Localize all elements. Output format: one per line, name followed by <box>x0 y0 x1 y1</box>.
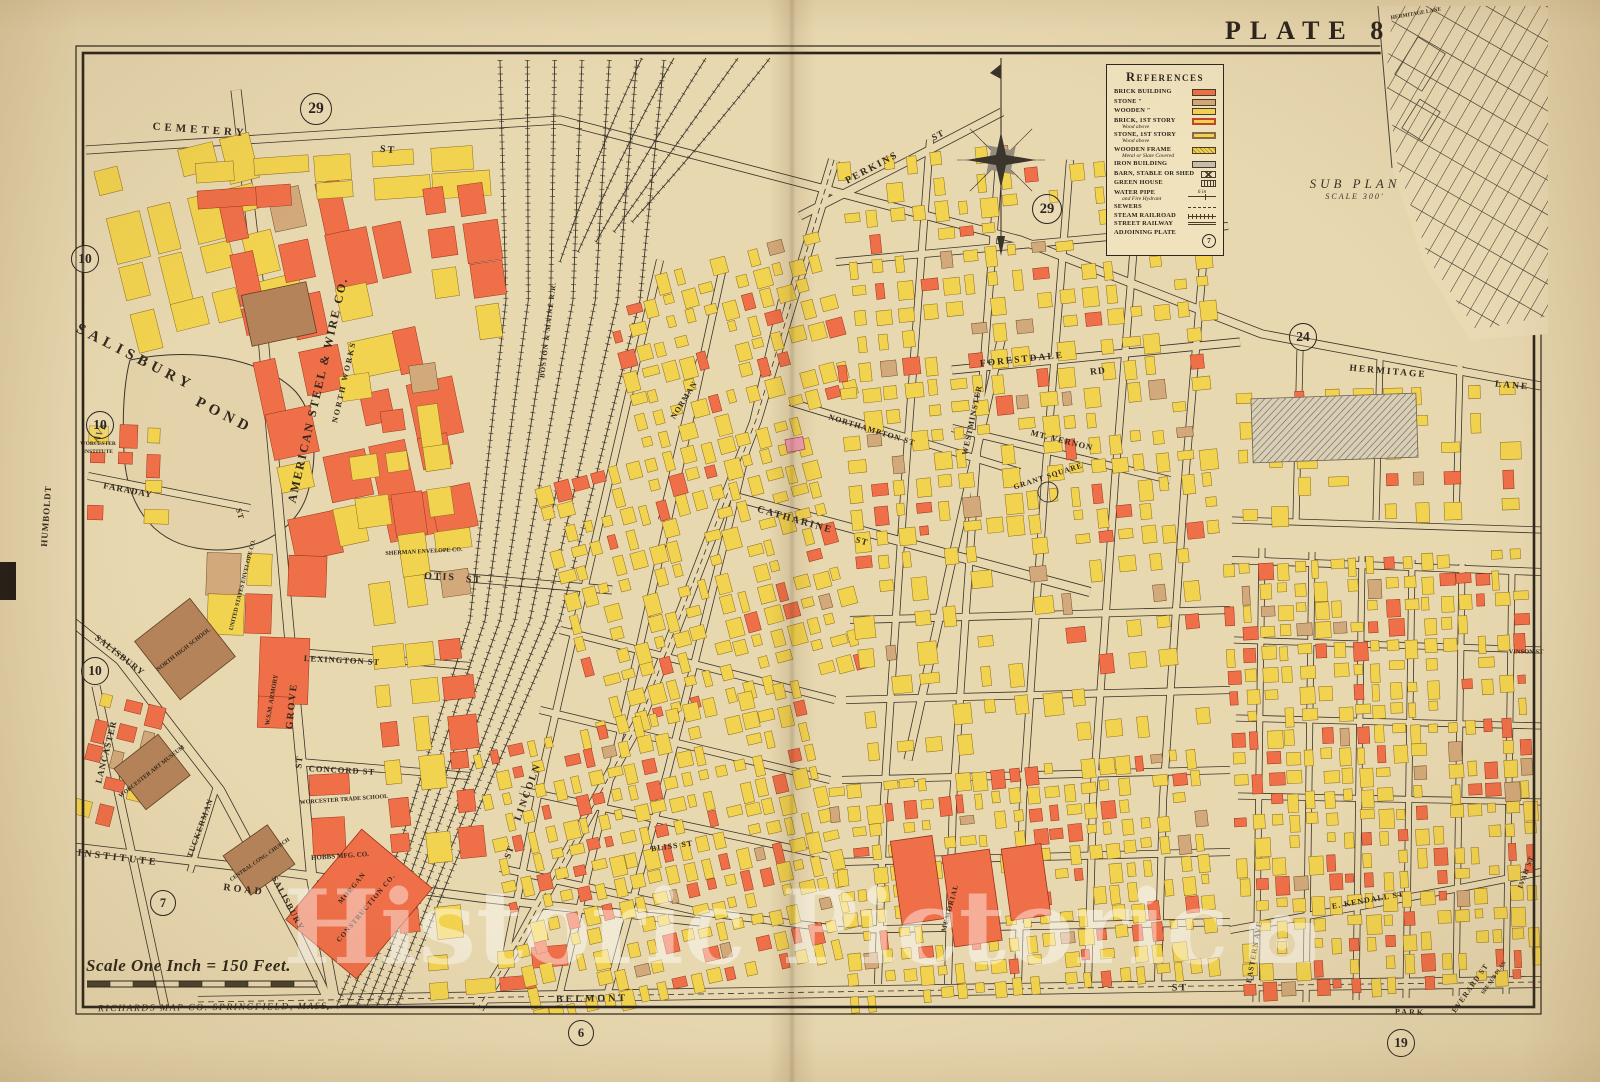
legend-item-label: Water Pipe <box>1114 189 1161 196</box>
subplan-title: SUB PLAN <box>1300 176 1410 192</box>
legend-swatch-plate: 7 <box>1202 230 1216 248</box>
legend-swatch-brick1 <box>1192 118 1216 125</box>
plate-title-label: Plate <box>1225 16 1355 45</box>
legend-row: Wooden ″ <box>1114 107 1216 115</box>
legend-row: Adjoining Plate7 <box>1114 229 1216 248</box>
scale-text: Scale One Inch = 150 Feet. <box>86 956 331 976</box>
margin-ink-tab <box>0 562 16 600</box>
publisher-credit: RICHARDS MAP CO. SPRINGFIELD, MASS. <box>98 1002 331 1014</box>
references-legend: References Brick BuildingStone ″Wooden ″… <box>1106 64 1224 256</box>
legend-swatch-railroad <box>1188 214 1216 219</box>
map-canvas <box>0 0 1600 1082</box>
legend-item-label: Sewers <box>1114 203 1142 210</box>
legend-swatch-sewer <box>1188 207 1216 208</box>
adjoining-plate-glyph: 7 <box>1202 234 1216 248</box>
subplan-label: SUB PLAN SCALE 300' <box>1300 176 1410 201</box>
legend-row: Wooden FrameMetal or Slate Covered <box>1114 146 1216 159</box>
legend-item-label: Brick, 1st Story <box>1114 117 1176 124</box>
legend-row: Brick, 1st StoryWood above <box>1114 117 1216 130</box>
legend-swatch-water: 6 in <box>1188 190 1216 197</box>
legend-row: Stone ″ <box>1114 98 1216 106</box>
legend-swatch-frame <box>1192 147 1216 154</box>
legend-swatch-iron <box>1192 161 1216 168</box>
legend-item-label: Green House <box>1114 179 1163 186</box>
legend-item-label: Stone, 1st Story <box>1114 131 1176 138</box>
legend-item-label: Wooden ″ <box>1114 107 1151 114</box>
legend-swatch-barn <box>1201 171 1216 178</box>
legend-swatch-stone1 <box>1192 132 1216 139</box>
legend-item-label: Street Railway <box>1114 220 1173 227</box>
legend-item-label: Iron Building <box>1114 160 1167 167</box>
legend-row: Steam Railroad <box>1114 212 1216 219</box>
legend-row: Sewers <box>1114 203 1216 210</box>
legend-row: Brick Building <box>1114 88 1216 96</box>
legend-row: Barn, Stable or Shed <box>1114 170 1216 178</box>
legend-swatch-stone <box>1192 99 1216 106</box>
legend-title: References <box>1114 70 1216 85</box>
legend-item-label: Wooden Frame <box>1114 146 1174 153</box>
legend-swatch-railway <box>1188 222 1216 225</box>
legend-item-label: Adjoining Plate <box>1114 229 1176 236</box>
legend-item-label: Stone ″ <box>1114 98 1142 105</box>
legend-item-label: Brick Building <box>1114 88 1172 95</box>
legend-row: Green House <box>1114 179 1216 187</box>
legend-row: Water Pipeand Fire Hydrant6 in <box>1114 189 1216 202</box>
legend-item-sublabel: Wood above <box>1122 124 1176 130</box>
legend-item-label: Steam Railroad <box>1114 212 1176 219</box>
legend-swatch-brick <box>1192 89 1216 96</box>
subplan-scale: SCALE 300' <box>1300 192 1410 201</box>
scale-bar <box>86 979 318 989</box>
atlas-page: CEMETERYSTSALISBURYPONDAMERICAN STEEL & … <box>0 0 1600 1082</box>
legend-swatch-wood <box>1192 108 1216 115</box>
legend-swatch-green <box>1201 180 1216 187</box>
plate-title-number: 8 <box>1370 16 1392 45</box>
legend-row: Iron Building <box>1114 160 1216 168</box>
scale-block: Scale One Inch = 150 Feet. RICHARDS MAP … <box>86 956 331 1013</box>
legend-item-sublabel: Metal or Slate Covered <box>1122 153 1174 159</box>
legend-item-sublabel: Wood above <box>1122 138 1176 144</box>
plate-title: Plate 8 <box>1225 16 1392 46</box>
legend-row: Street Railway <box>1114 220 1216 227</box>
legend-item-label: Barn, Stable or Shed <box>1114 170 1194 177</box>
legend-item-sublabel: and Fire Hydrant <box>1122 196 1161 202</box>
legend-row: Stone, 1st StoryWood above <box>1114 131 1216 144</box>
legend-rows: Brick BuildingStone ″Wooden ″Brick, 1st … <box>1114 88 1216 248</box>
